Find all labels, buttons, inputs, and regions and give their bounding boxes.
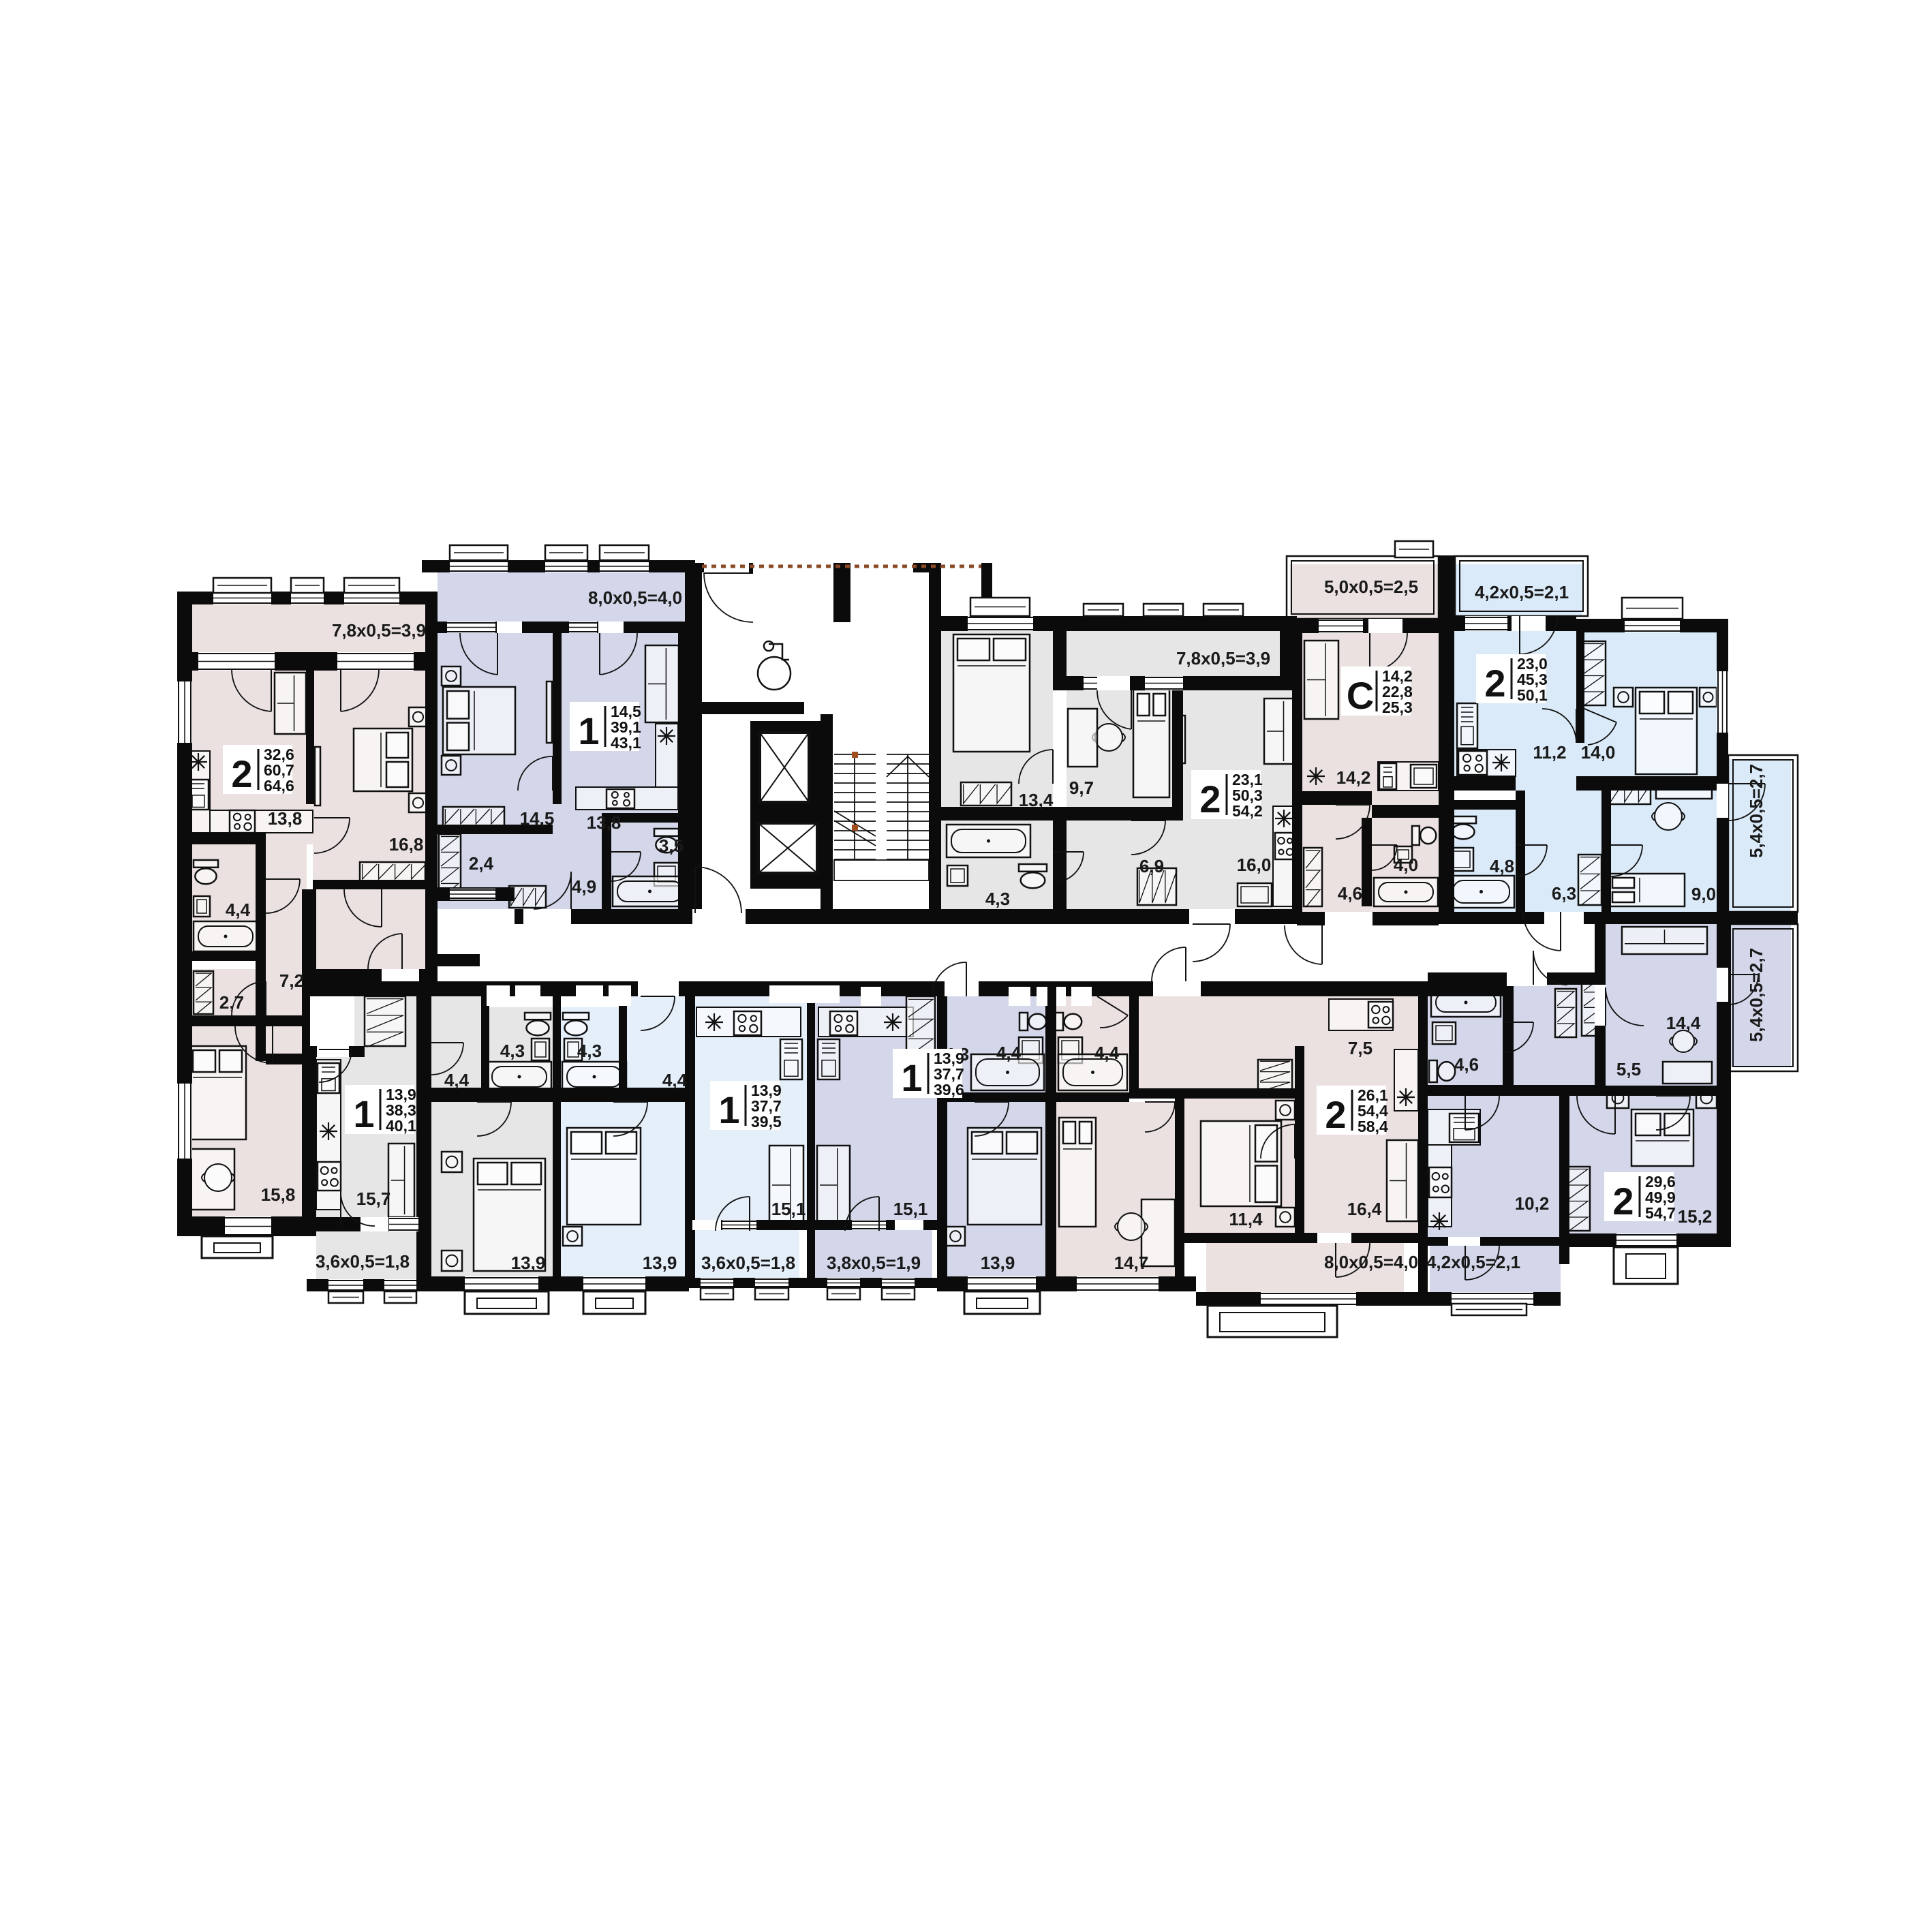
- svg-text:4,6: 4,6: [1454, 1054, 1479, 1075]
- svg-text:2: 2: [1612, 1180, 1634, 1223]
- svg-text:6,9: 6,9: [1139, 856, 1164, 876]
- svg-text:2: 2: [231, 752, 252, 795]
- svg-text:15,7: 15,7: [356, 1189, 391, 1209]
- svg-text:1: 1: [901, 1056, 922, 1099]
- svg-text:2: 2: [1484, 662, 1505, 705]
- svg-text:4,3: 4,3: [985, 889, 1010, 909]
- svg-text:5,4x0,5=2,7: 5,4x0,5=2,7: [1746, 948, 1766, 1042]
- svg-text:3,5: 3,5: [659, 835, 684, 856]
- svg-text:2: 2: [1199, 778, 1221, 821]
- svg-text:14,4: 14,4: [1666, 1013, 1701, 1033]
- svg-text:4,2x0,5=2,1: 4,2x0,5=2,1: [1475, 582, 1569, 602]
- svg-text:2,4: 2,4: [469, 853, 494, 874]
- svg-text:3,6x0,5=1,8: 3,6x0,5=1,8: [701, 1253, 795, 1273]
- svg-text:3,8x0,5=1,9: 3,8x0,5=1,9: [827, 1253, 921, 1273]
- svg-text:4,4: 4,4: [996, 1043, 1022, 1063]
- svg-text:15,1: 15,1: [893, 1199, 928, 1219]
- svg-text:13,9: 13,9: [511, 1253, 546, 1273]
- svg-text:13,9: 13,9: [643, 1253, 677, 1273]
- svg-text:15,2: 15,2: [1678, 1206, 1713, 1227]
- svg-text:43,1: 43,1: [611, 734, 641, 752]
- svg-text:4,4: 4,4: [444, 1070, 470, 1090]
- svg-text:50,1: 50,1: [1517, 686, 1548, 704]
- svg-text:4,9: 4,9: [572, 876, 596, 897]
- svg-text:10,2: 10,2: [1515, 1193, 1550, 1214]
- svg-text:39,6: 39,6: [934, 1081, 964, 1099]
- svg-text:С: С: [1347, 674, 1374, 717]
- svg-text:2: 2: [1325, 1093, 1346, 1136]
- svg-text:25,3: 25,3: [1382, 699, 1413, 716]
- svg-text:1: 1: [353, 1092, 374, 1135]
- svg-text:14,0: 14,0: [1581, 742, 1616, 763]
- svg-text:14,7: 14,7: [1114, 1253, 1149, 1273]
- svg-text:15,8: 15,8: [261, 1184, 296, 1205]
- svg-text:58,4: 58,4: [1358, 1118, 1388, 1135]
- svg-text:16,4: 16,4: [1347, 1199, 1382, 1219]
- svg-text:5,4x0,5=2,7: 5,4x0,5=2,7: [1746, 764, 1766, 858]
- svg-text:4,4: 4,4: [662, 1070, 688, 1090]
- svg-text:5,5: 5,5: [1616, 1059, 1641, 1079]
- svg-text:1: 1: [578, 709, 599, 752]
- svg-text:54,7: 54,7: [1645, 1204, 1676, 1222]
- svg-text:13,8: 13,8: [268, 808, 303, 829]
- svg-text:11,2: 11,2: [1533, 742, 1566, 763]
- svg-text:7,5: 7,5: [1348, 1038, 1373, 1058]
- svg-text:11,4: 11,4: [1229, 1209, 1263, 1229]
- svg-text:5,0x0,5=2,5: 5,0x0,5=2,5: [1324, 577, 1418, 597]
- svg-text:40,1: 40,1: [386, 1117, 416, 1135]
- svg-text:13,8: 13,8: [587, 812, 622, 833]
- svg-text:4,0: 4,0: [1394, 855, 1418, 875]
- svg-text:54,2: 54,2: [1232, 802, 1263, 820]
- svg-text:16,8: 16,8: [389, 834, 424, 855]
- svg-text:15,1: 15,1: [771, 1199, 806, 1219]
- svg-text:64,6: 64,6: [264, 777, 294, 795]
- svg-text:4,8: 4,8: [1490, 856, 1514, 876]
- svg-text:7,8x0,5=3,9: 7,8x0,5=3,9: [332, 620, 426, 641]
- svg-text:14,5: 14,5: [520, 808, 555, 829]
- svg-text:8,0x0,5=4,0: 8,0x0,5=4,0: [1324, 1252, 1418, 1272]
- svg-text:3,6x0,5=1,8: 3,6x0,5=1,8: [316, 1251, 410, 1272]
- svg-text:8,0x0,5=4,0: 8,0x0,5=4,0: [588, 587, 682, 608]
- svg-text:4,6: 4,6: [1338, 883, 1362, 904]
- svg-text:16,0: 16,0: [1237, 855, 1272, 875]
- svg-text:4,3: 4,3: [500, 1041, 525, 1061]
- svg-text:2,7: 2,7: [219, 992, 244, 1013]
- svg-text:4,4: 4,4: [226, 900, 251, 920]
- svg-text:1: 1: [718, 1088, 739, 1131]
- svg-text:13,9: 13,9: [981, 1253, 1015, 1273]
- svg-text:9,7: 9,7: [1069, 778, 1094, 798]
- svg-text:9,0: 9,0: [1691, 884, 1716, 904]
- svg-text:14,2: 14,2: [1336, 767, 1371, 788]
- svg-text:4,2x0,5=2,1: 4,2x0,5=2,1: [1426, 1252, 1520, 1272]
- svg-text:4,3: 4,3: [577, 1041, 602, 1061]
- svg-text:7,2: 7,2: [279, 970, 304, 991]
- svg-text:6,3: 6,3: [1552, 883, 1576, 904]
- svg-text:39,5: 39,5: [751, 1113, 782, 1131]
- svg-text:13,4: 13,4: [1019, 790, 1054, 810]
- svg-text:4,4: 4,4: [1094, 1043, 1120, 1063]
- svg-text:7,8x0,5=3,9: 7,8x0,5=3,9: [1176, 648, 1270, 669]
